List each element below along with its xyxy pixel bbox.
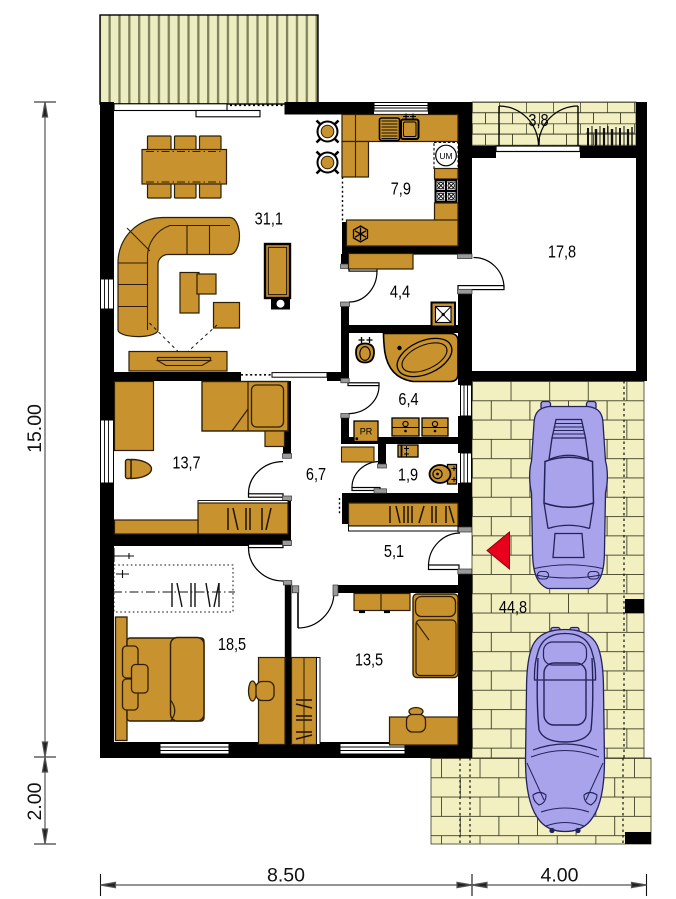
svg-text:PR: PR <box>360 427 373 437</box>
svg-text:5,1: 5,1 <box>384 542 404 562</box>
svg-text:7,9: 7,9 <box>391 179 411 199</box>
svg-text:3,8: 3,8 <box>528 111 548 131</box>
svg-text:13,5: 13,5 <box>355 650 383 670</box>
svg-text:4,4: 4,4 <box>390 282 410 302</box>
svg-text:44,8: 44,8 <box>499 598 527 618</box>
svg-text:1,9: 1,9 <box>398 465 418 485</box>
svg-text:8.50: 8.50 <box>267 865 305 887</box>
svg-text:17,8: 17,8 <box>548 242 576 262</box>
svg-text:UM: UM <box>439 151 452 161</box>
svg-text:13,7: 13,7 <box>172 453 200 473</box>
svg-text:18,5: 18,5 <box>218 635 246 655</box>
svg-text:15.00: 15.00 <box>24 404 46 453</box>
svg-text:6,7: 6,7 <box>306 465 326 485</box>
svg-text:4.00: 4.00 <box>541 865 579 887</box>
svg-text:6,4: 6,4 <box>398 390 418 410</box>
svg-text:2.00: 2.00 <box>24 782 46 820</box>
svg-text:31,1: 31,1 <box>255 209 283 229</box>
